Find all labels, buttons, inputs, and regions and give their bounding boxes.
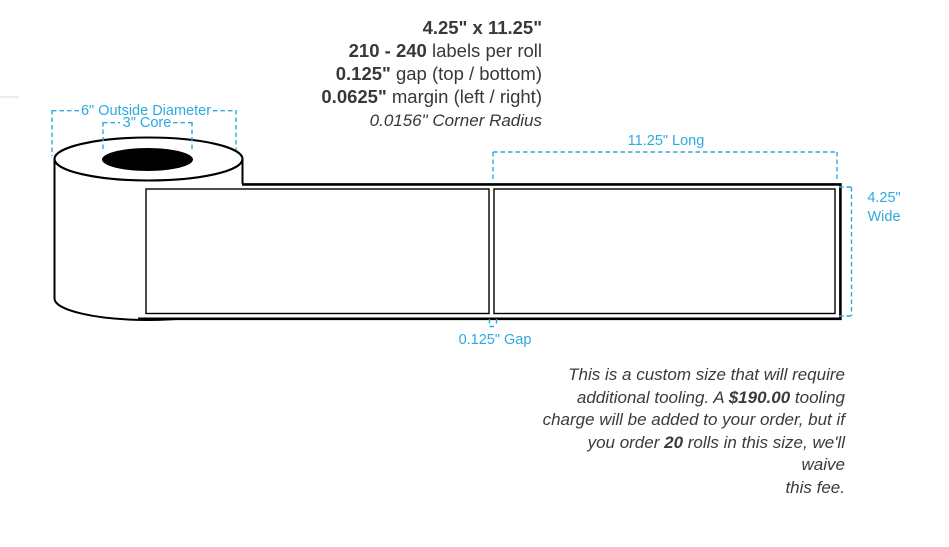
label-1 [146, 189, 489, 314]
width-word: Wide [858, 208, 910, 227]
tooling-note: This is a custom size that will requirea… [542, 364, 845, 499]
roll-core-hole [102, 148, 193, 171]
gap-bracket [490, 319, 497, 327]
spec-summary: 4.25" x 11.25"210 - 240 labels per roll0… [192, 16, 542, 132]
gap-dimension-label: 0.125" Gap [445, 331, 545, 350]
label-2 [494, 189, 835, 314]
width-value: 4.25" [858, 189, 910, 208]
length-dimension-label: 11.25" Long [591, 132, 741, 151]
label-roll-spec-diagram: 4.25" x 11.25"210 - 240 labels per roll0… [0, 0, 949, 547]
long-bracket [493, 152, 837, 182]
core-label: 3" Core [101, 114, 193, 133]
width-dimension-label: 4.25" Wide [858, 189, 910, 227]
